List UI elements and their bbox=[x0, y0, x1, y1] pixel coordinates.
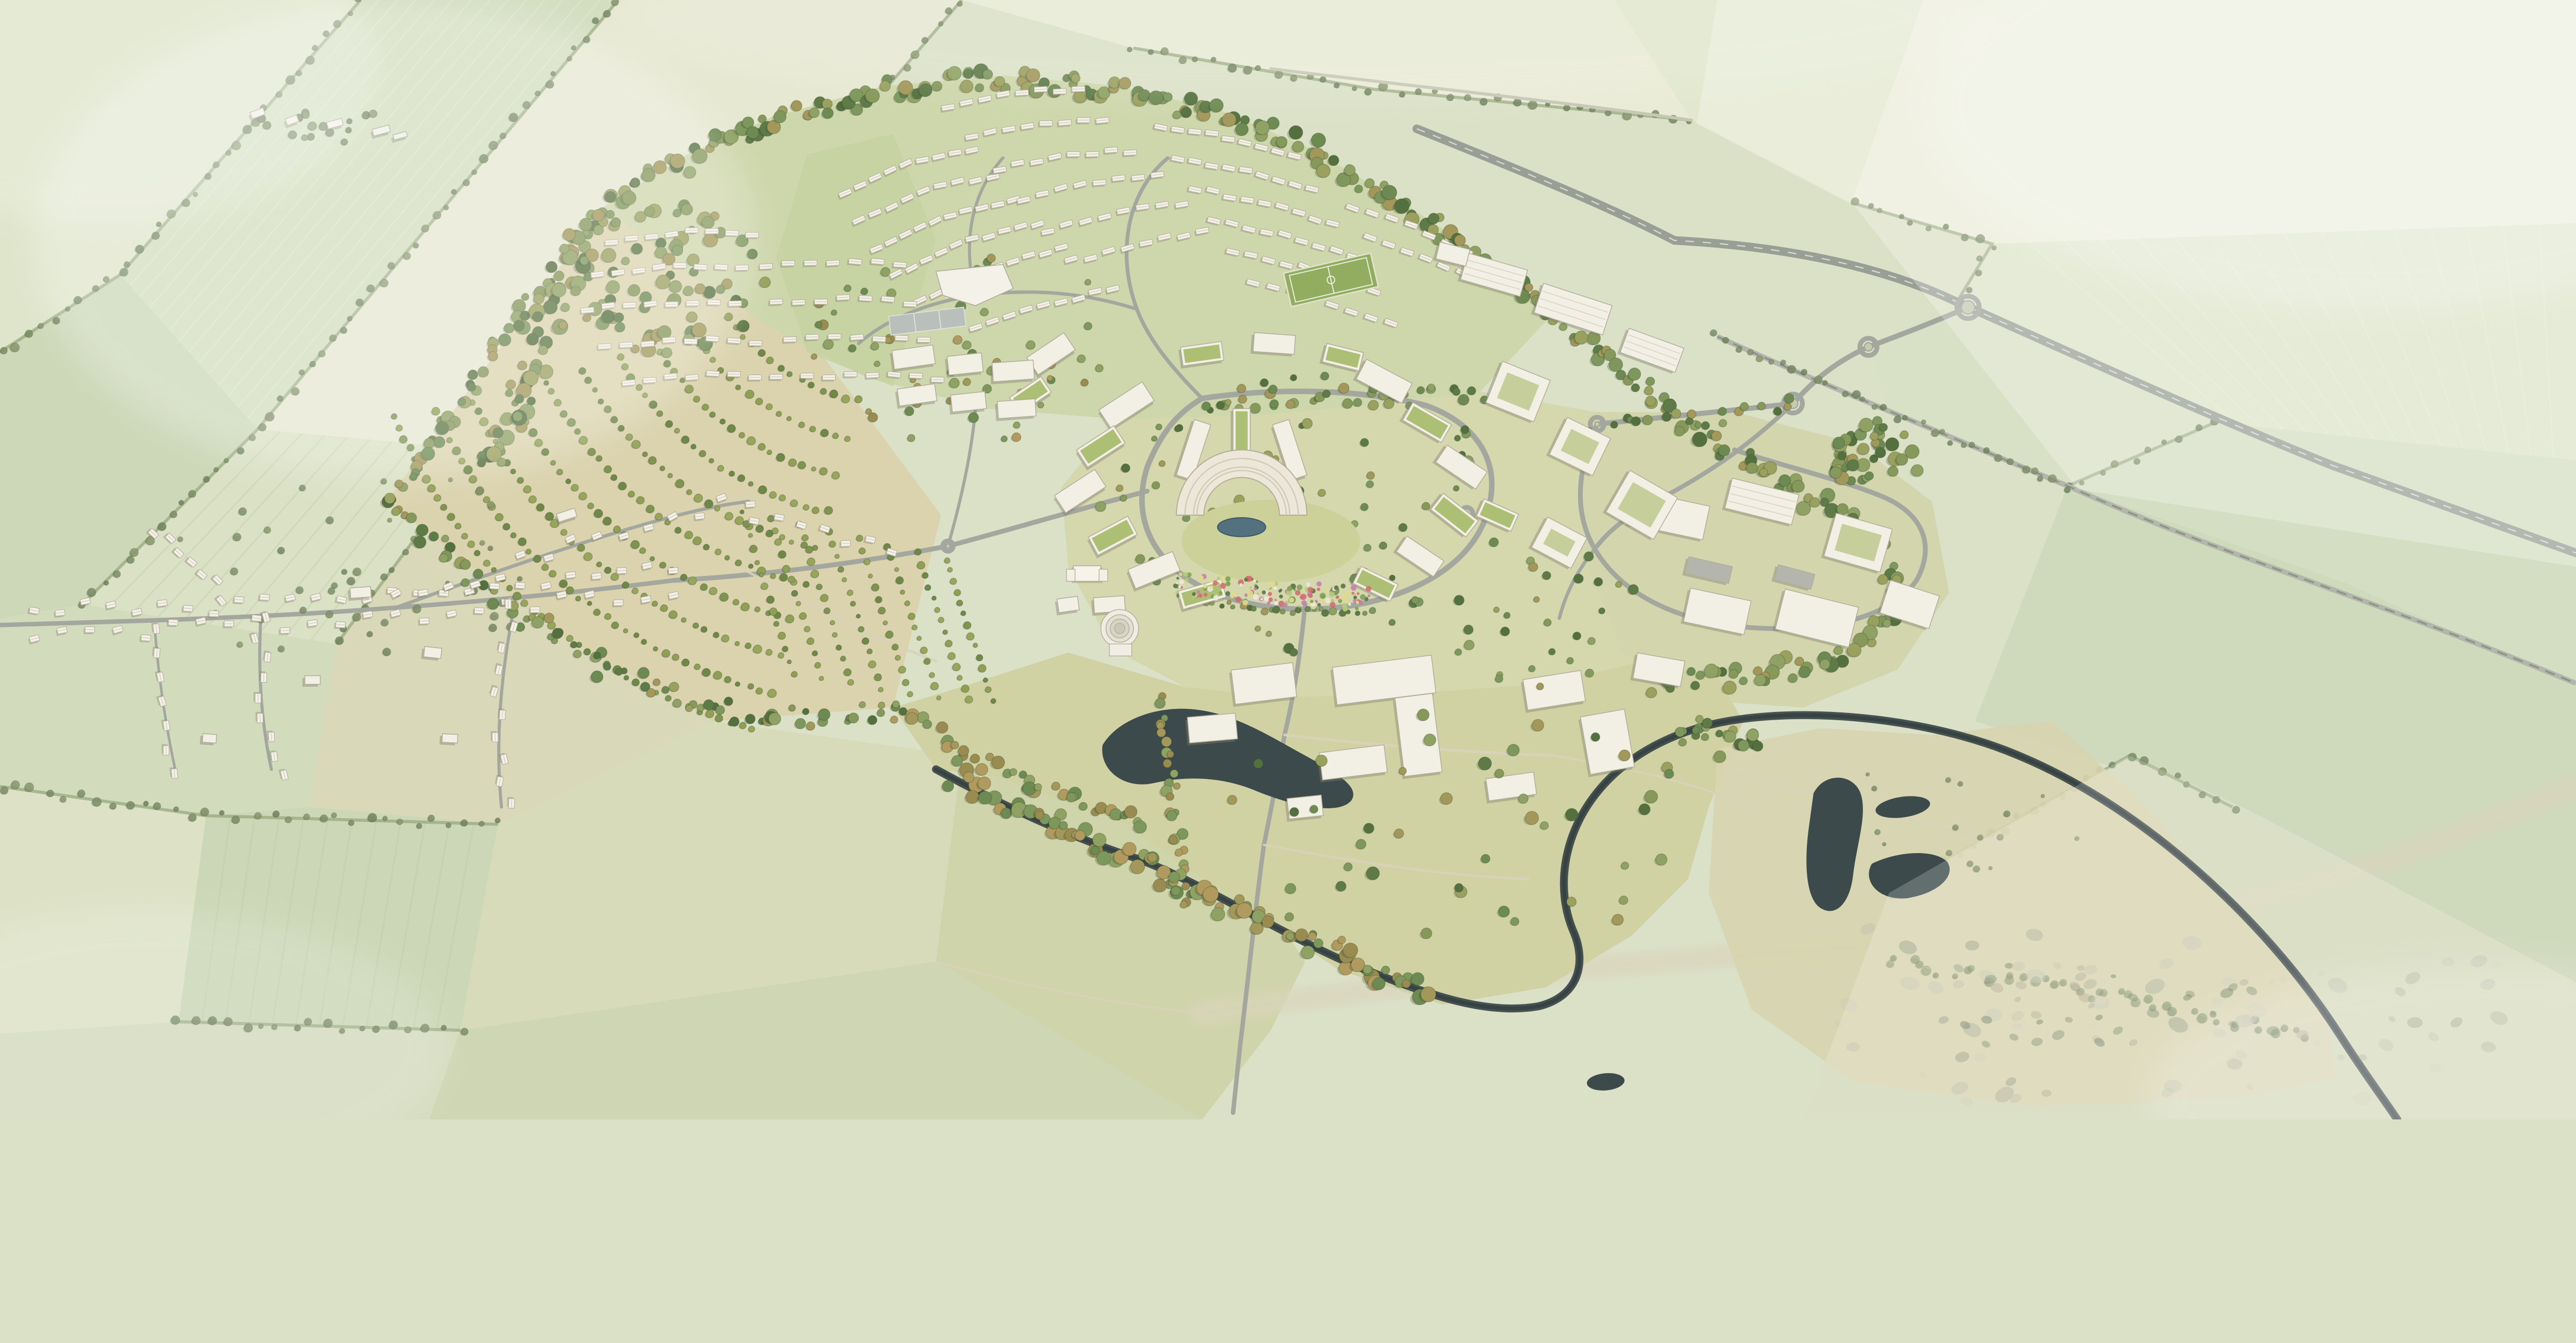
tree bbox=[917, 562, 925, 569]
tree bbox=[2007, 458, 2013, 465]
house bbox=[821, 375, 835, 382]
tree bbox=[766, 403, 772, 410]
tree bbox=[429, 532, 438, 541]
tree bbox=[1748, 349, 1753, 355]
tree bbox=[714, 671, 722, 679]
tree bbox=[479, 821, 484, 826]
tree bbox=[1687, 410, 1696, 418]
tree bbox=[820, 388, 826, 395]
tree bbox=[1710, 330, 1717, 336]
tree bbox=[413, 605, 421, 613]
tree bbox=[1293, 141, 1304, 152]
tree bbox=[328, 588, 335, 594]
tree bbox=[983, 678, 988, 683]
tree bbox=[632, 588, 638, 594]
tree bbox=[1323, 390, 1330, 398]
tree bbox=[875, 597, 882, 603]
tree bbox=[618, 482, 626, 490]
house bbox=[269, 750, 278, 762]
tree bbox=[866, 89, 879, 103]
house bbox=[1065, 151, 1080, 158]
tree bbox=[883, 621, 888, 625]
tree bbox=[1235, 123, 1248, 136]
tree bbox=[745, 643, 751, 649]
tree bbox=[849, 713, 859, 723]
tree bbox=[954, 335, 962, 344]
tree bbox=[1797, 501, 1810, 515]
tree bbox=[1321, 372, 1329, 380]
tree bbox=[789, 540, 794, 545]
tree bbox=[1671, 409, 1681, 418]
tree bbox=[1343, 399, 1352, 409]
tree bbox=[788, 576, 795, 583]
tree bbox=[1529, 100, 1537, 109]
tree bbox=[296, 587, 303, 594]
tree bbox=[1838, 451, 1846, 460]
tree bbox=[685, 385, 693, 393]
tree bbox=[383, 816, 387, 821]
tree bbox=[1833, 437, 1845, 449]
tree bbox=[914, 549, 921, 555]
tree bbox=[767, 450, 772, 454]
tree bbox=[653, 647, 658, 651]
tree bbox=[874, 674, 882, 681]
house-ridge bbox=[747, 504, 754, 504]
tree bbox=[476, 488, 483, 495]
tree bbox=[1121, 464, 1130, 472]
roundabout-island bbox=[1865, 343, 1873, 351]
tree bbox=[705, 500, 713, 508]
tree bbox=[367, 631, 372, 637]
tree bbox=[1171, 887, 1180, 896]
tree bbox=[381, 574, 387, 581]
tree bbox=[1084, 322, 1092, 330]
tree bbox=[615, 668, 622, 675]
tree bbox=[158, 522, 166, 531]
house bbox=[902, 301, 917, 309]
aerial-masterplan-rendering bbox=[0, 0, 2576, 1119]
tree bbox=[273, 811, 280, 818]
tree bbox=[724, 697, 733, 706]
tree bbox=[756, 398, 762, 405]
tree bbox=[922, 572, 928, 579]
tree bbox=[947, 567, 953, 572]
house bbox=[83, 627, 94, 634]
tree bbox=[1675, 427, 1685, 436]
tree bbox=[1301, 946, 1314, 959]
tree bbox=[1251, 606, 1257, 611]
tree bbox=[713, 632, 719, 638]
tree bbox=[849, 345, 856, 352]
tree bbox=[511, 533, 516, 538]
tree bbox=[668, 473, 672, 478]
tree bbox=[1905, 445, 1919, 458]
tree bbox=[776, 453, 785, 462]
tree bbox=[753, 645, 762, 654]
house bbox=[1091, 180, 1106, 188]
tree bbox=[1489, 538, 1499, 547]
tree bbox=[579, 492, 587, 500]
tree bbox=[675, 479, 684, 488]
tree bbox=[1159, 461, 1165, 467]
tree bbox=[766, 649, 772, 655]
tree bbox=[642, 452, 648, 457]
tree bbox=[1815, 376, 1822, 384]
tree bbox=[1367, 472, 1375, 480]
house bbox=[790, 299, 805, 307]
tree bbox=[232, 816, 240, 824]
tree bbox=[2064, 487, 2071, 493]
tree bbox=[666, 420, 673, 428]
tree bbox=[1182, 882, 1190, 890]
house bbox=[835, 295, 850, 302]
tree bbox=[392, 507, 400, 516]
tree bbox=[469, 475, 477, 483]
tree bbox=[353, 568, 361, 576]
tree bbox=[660, 605, 668, 612]
tree bbox=[605, 614, 611, 620]
tree bbox=[605, 567, 612, 574]
tree bbox=[864, 559, 870, 565]
tree bbox=[587, 601, 592, 606]
tree bbox=[557, 469, 563, 475]
tree bbox=[1363, 965, 1372, 974]
house-ridge bbox=[932, 380, 943, 380]
house bbox=[780, 261, 794, 268]
house bbox=[768, 299, 783, 306]
tree bbox=[831, 310, 837, 315]
tree bbox=[2048, 474, 2056, 482]
tree bbox=[480, 540, 485, 546]
tree bbox=[924, 658, 930, 665]
tree bbox=[745, 390, 754, 399]
tree bbox=[937, 722, 948, 733]
tree bbox=[1026, 341, 1035, 349]
tree bbox=[954, 589, 961, 596]
tree bbox=[1799, 667, 1810, 678]
tree bbox=[632, 679, 639, 686]
tree bbox=[921, 647, 927, 654]
tree bbox=[278, 547, 285, 554]
house bbox=[253, 692, 261, 703]
house bbox=[803, 260, 817, 267]
tree bbox=[858, 626, 864, 632]
tree bbox=[1389, 575, 1395, 581]
tree bbox=[1262, 916, 1274, 928]
tree bbox=[237, 642, 243, 648]
tree bbox=[588, 503, 594, 509]
tree bbox=[1308, 932, 1316, 941]
tree bbox=[819, 676, 824, 681]
tree bbox=[957, 675, 962, 681]
tree bbox=[851, 601, 856, 606]
tree bbox=[842, 395, 850, 403]
tree bbox=[1166, 793, 1174, 801]
tree bbox=[892, 701, 900, 708]
tree bbox=[810, 426, 816, 432]
tree bbox=[285, 817, 292, 823]
tree bbox=[835, 554, 840, 559]
tree bbox=[1894, 416, 1901, 423]
tree bbox=[856, 535, 863, 541]
tree bbox=[669, 682, 679, 692]
tree bbox=[414, 536, 426, 548]
house bbox=[529, 607, 540, 615]
tree bbox=[861, 288, 868, 295]
tree bbox=[526, 549, 531, 554]
tree bbox=[632, 440, 640, 448]
tree bbox=[1361, 503, 1368, 511]
tree bbox=[517, 477, 523, 483]
tree bbox=[791, 671, 798, 677]
tree bbox=[809, 108, 819, 117]
tree bbox=[1421, 987, 1436, 1001]
tree bbox=[738, 474, 745, 482]
house-ridge bbox=[271, 733, 272, 741]
tree bbox=[1946, 777, 1951, 783]
tree bbox=[1163, 759, 1172, 768]
tree bbox=[1792, 480, 1804, 492]
tree bbox=[715, 715, 723, 722]
house bbox=[842, 371, 857, 378]
tree bbox=[1154, 879, 1167, 892]
tree bbox=[693, 537, 702, 545]
tree bbox=[1878, 574, 1888, 584]
tree bbox=[1203, 887, 1218, 902]
tree bbox=[561, 529, 567, 535]
tree bbox=[756, 688, 763, 694]
tree bbox=[1417, 386, 1425, 394]
tree bbox=[1611, 421, 1618, 429]
tree bbox=[1646, 396, 1656, 406]
tree bbox=[1222, 113, 1236, 127]
tree bbox=[1574, 331, 1588, 344]
tree bbox=[1227, 600, 1231, 605]
tree bbox=[767, 357, 773, 364]
tree bbox=[461, 1028, 468, 1035]
house bbox=[799, 373, 814, 380]
tree bbox=[1820, 659, 1830, 669]
tree bbox=[1255, 626, 1261, 632]
tree bbox=[741, 603, 750, 611]
tree bbox=[474, 550, 480, 556]
tree bbox=[416, 823, 422, 829]
tree bbox=[214, 467, 218, 472]
tree bbox=[740, 334, 745, 339]
tree bbox=[950, 378, 959, 388]
tree bbox=[484, 560, 490, 567]
tree bbox=[1646, 377, 1655, 386]
tree bbox=[416, 524, 428, 536]
tree bbox=[931, 682, 939, 690]
tree bbox=[1984, 448, 1989, 453]
tree bbox=[787, 660, 791, 664]
tree bbox=[1859, 418, 1873, 432]
house-ridge bbox=[142, 638, 150, 638]
tree bbox=[724, 676, 731, 683]
tree bbox=[1755, 674, 1766, 686]
tree bbox=[770, 491, 776, 498]
tree bbox=[669, 610, 677, 619]
tree bbox=[1381, 966, 1389, 974]
tree bbox=[342, 569, 347, 575]
tree bbox=[594, 509, 603, 518]
tree bbox=[641, 639, 647, 644]
tree bbox=[778, 632, 786, 639]
tree bbox=[1329, 607, 1337, 615]
tree bbox=[179, 500, 183, 505]
tree bbox=[629, 491, 635, 497]
house bbox=[871, 336, 886, 344]
tree bbox=[1461, 426, 1469, 434]
tree bbox=[503, 523, 510, 530]
tree bbox=[1270, 400, 1279, 409]
tree bbox=[1785, 394, 1794, 403]
tree bbox=[824, 506, 833, 515]
house bbox=[748, 341, 762, 347]
tree bbox=[1453, 388, 1460, 395]
tree bbox=[1295, 929, 1308, 942]
tree bbox=[551, 461, 556, 466]
tree bbox=[1903, 415, 1908, 420]
tree bbox=[10, 343, 19, 352]
tree bbox=[871, 342, 878, 350]
tree bbox=[929, 672, 935, 678]
tree bbox=[640, 548, 646, 554]
tree bbox=[573, 650, 581, 658]
tree bbox=[1152, 482, 1160, 489]
house bbox=[849, 334, 864, 342]
tree bbox=[778, 365, 784, 371]
tree bbox=[790, 500, 798, 507]
house bbox=[615, 568, 626, 575]
tree bbox=[1266, 631, 1272, 637]
tree bbox=[749, 533, 753, 537]
tree bbox=[792, 590, 798, 597]
tree bbox=[803, 581, 809, 587]
tree bbox=[1866, 772, 1870, 776]
tree bbox=[536, 504, 544, 512]
tree bbox=[739, 722, 746, 729]
tree bbox=[255, 812, 261, 819]
tree bbox=[1886, 438, 1899, 451]
tree bbox=[978, 777, 991, 790]
tree bbox=[490, 612, 499, 620]
house bbox=[782, 337, 796, 344]
tree bbox=[92, 797, 101, 806]
tree bbox=[468, 541, 474, 548]
tree bbox=[1059, 821, 1067, 829]
tree bbox=[1305, 606, 1311, 612]
tree bbox=[895, 568, 899, 572]
tree bbox=[224, 458, 229, 463]
tree bbox=[2037, 476, 2043, 482]
tree bbox=[985, 687, 991, 693]
tree bbox=[660, 562, 666, 568]
tree bbox=[1969, 442, 1975, 448]
tree bbox=[906, 712, 918, 724]
tree bbox=[1366, 481, 1374, 488]
tree bbox=[1719, 419, 1727, 427]
tree bbox=[1632, 384, 1640, 392]
tree bbox=[1402, 980, 1411, 988]
house bbox=[1103, 147, 1118, 155]
tree bbox=[848, 679, 854, 686]
tree bbox=[1454, 435, 1461, 441]
tree bbox=[1747, 462, 1758, 473]
tree bbox=[1711, 431, 1721, 441]
tree bbox=[1343, 943, 1358, 958]
tree bbox=[842, 577, 846, 582]
tree bbox=[953, 663, 960, 671]
house bbox=[267, 730, 275, 742]
tree bbox=[544, 613, 554, 623]
tree bbox=[815, 321, 822, 328]
tree bbox=[722, 635, 729, 642]
tree bbox=[789, 458, 796, 466]
tree bbox=[682, 436, 689, 444]
tree bbox=[674, 428, 680, 433]
tree bbox=[1225, 399, 1231, 405]
tree bbox=[440, 504, 447, 511]
tree bbox=[1219, 604, 1224, 608]
tree bbox=[874, 361, 880, 367]
tree bbox=[815, 662, 821, 669]
tree bbox=[951, 741, 959, 749]
tree bbox=[779, 495, 785, 501]
house bbox=[825, 260, 840, 268]
tree bbox=[836, 645, 842, 651]
house bbox=[156, 600, 167, 608]
tree bbox=[730, 717, 739, 726]
tree bbox=[1167, 811, 1177, 821]
tree bbox=[1718, 407, 1726, 416]
house bbox=[693, 513, 705, 521]
tree bbox=[706, 710, 714, 718]
house bbox=[279, 627, 290, 635]
tree bbox=[961, 685, 969, 692]
tree bbox=[844, 669, 851, 676]
tree bbox=[492, 567, 496, 572]
house-ridge bbox=[615, 603, 622, 603]
tree bbox=[952, 755, 962, 766]
tree bbox=[1256, 121, 1270, 135]
house-ridge bbox=[184, 608, 192, 609]
tree bbox=[1269, 385, 1277, 393]
tree bbox=[961, 611, 966, 616]
tree bbox=[78, 790, 85, 797]
tree bbox=[878, 687, 883, 692]
tree bbox=[1647, 687, 1657, 698]
tree bbox=[1173, 111, 1181, 119]
house-ridge bbox=[490, 586, 498, 586]
house bbox=[726, 337, 741, 345]
tree bbox=[511, 469, 516, 474]
tree bbox=[1883, 842, 1886, 846]
tree bbox=[1605, 110, 1611, 116]
tree bbox=[1870, 432, 1878, 440]
tree bbox=[750, 545, 757, 553]
house-ridge bbox=[910, 376, 922, 376]
tree bbox=[1454, 595, 1464, 605]
tree bbox=[720, 419, 725, 424]
tree bbox=[517, 576, 522, 582]
tree bbox=[740, 510, 744, 514]
tree bbox=[614, 526, 620, 533]
tree bbox=[758, 486, 767, 494]
tree bbox=[868, 716, 877, 725]
tree bbox=[1035, 811, 1044, 820]
